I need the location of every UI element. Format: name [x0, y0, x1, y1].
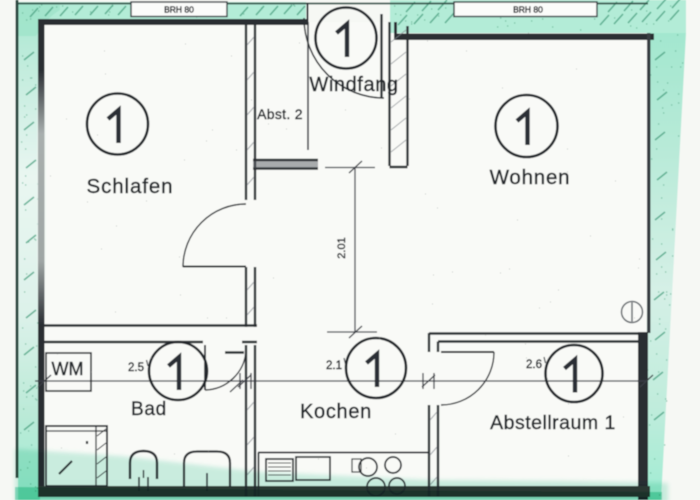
svg-text:Bad: Bad	[131, 399, 167, 420]
svg-text:WM: WM	[52, 359, 84, 379]
svg-text:BRH 80: BRH 80	[164, 5, 194, 15]
svg-text:2.1: 2.1	[326, 360, 342, 372]
svg-text:Wohnen: Wohnen	[490, 166, 571, 189]
svg-text:Abstellraum 1: Abstellraum 1	[490, 412, 616, 434]
svg-text:Abst. 2: Abst. 2	[257, 106, 303, 122]
svg-text:2.5: 2.5	[128, 362, 144, 374]
svg-text:Windfang: Windfang	[309, 74, 398, 96]
svg-text:Schlafen: Schlafen	[87, 175, 174, 198]
svg-text:Kochen: Kochen	[300, 401, 372, 423]
svg-text:2.01: 2.01	[336, 237, 348, 258]
svg-text:BRH 80: BRH 80	[513, 5, 543, 15]
svg-text:2.6: 2.6	[526, 359, 542, 371]
